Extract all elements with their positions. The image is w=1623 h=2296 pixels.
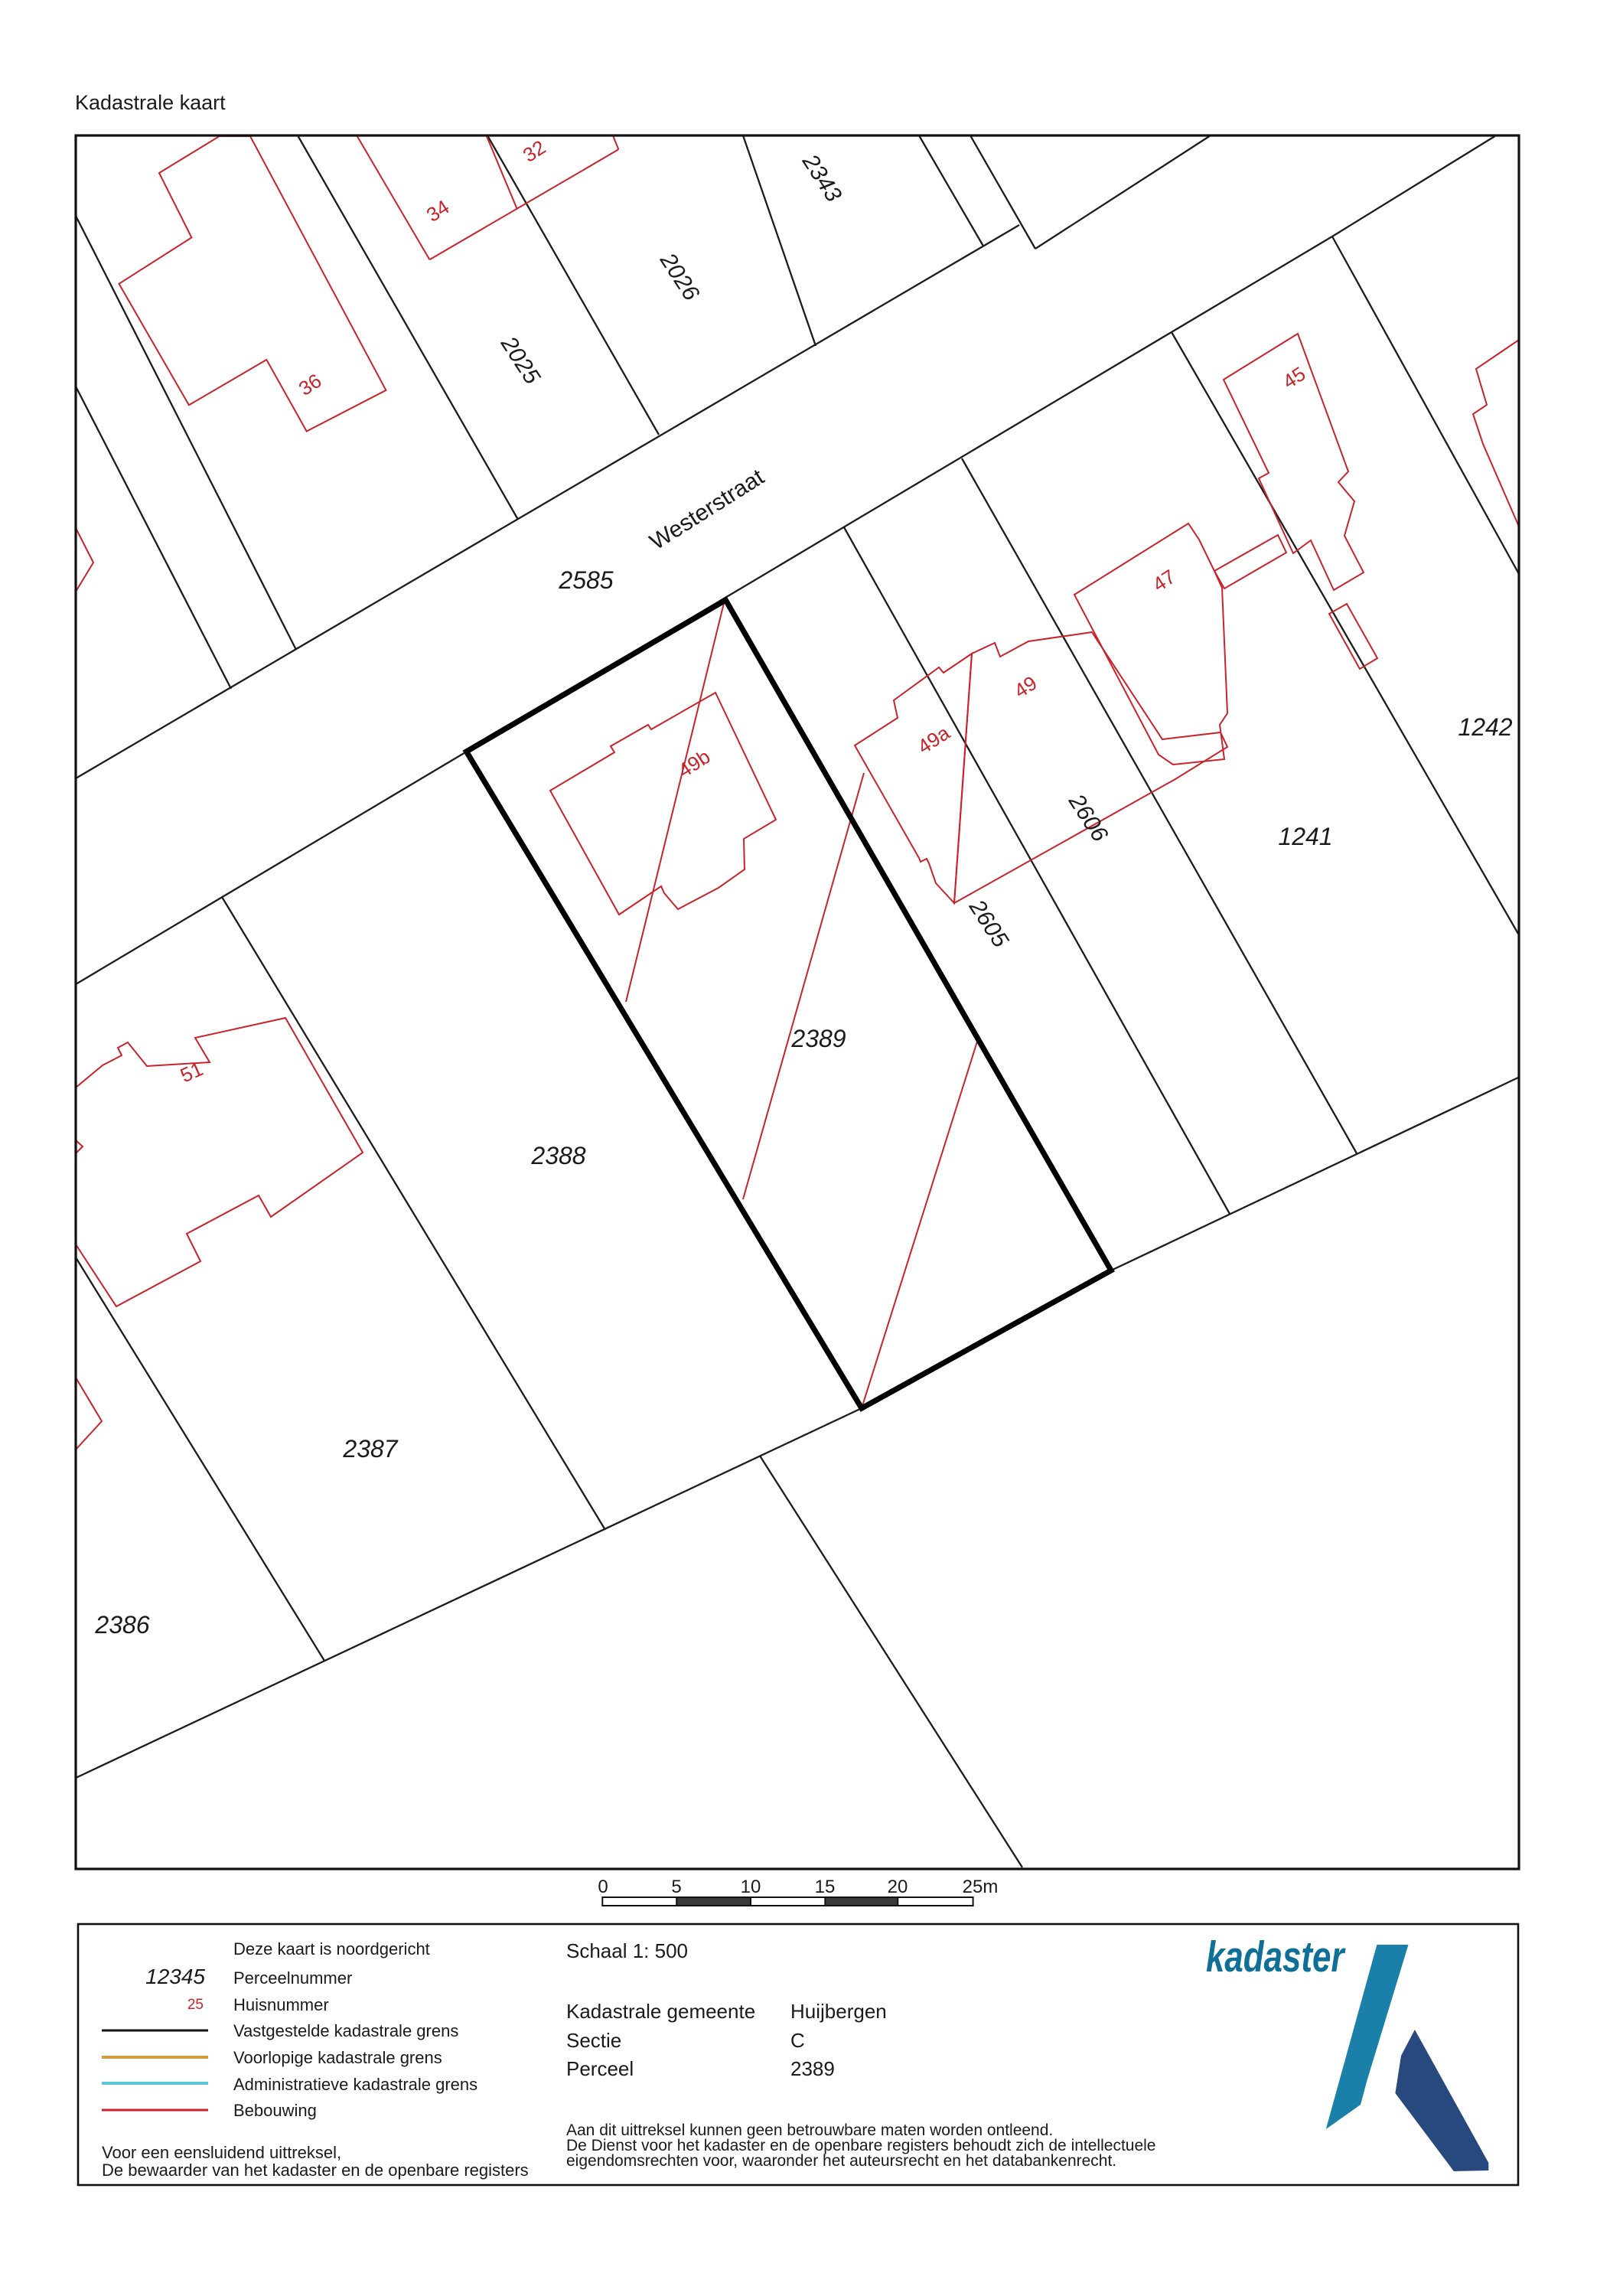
svg-text:15: 15 [815,1877,836,1897]
svg-text:2585: 2585 [558,566,613,594]
svg-text:Deze kaart is noordgericht: Deze kaart is noordgericht [233,1939,430,1958]
svg-text:20: 20 [888,1877,908,1897]
svg-text:kadaster: kadaster [1206,1932,1346,1981]
svg-text:Bebouwing: Bebouwing [233,2101,317,2120]
svg-text:2388: 2388 [530,1142,585,1169]
svg-text:5: 5 [671,1877,681,1897]
svg-text:0: 0 [598,1877,608,1897]
svg-text:Administratieve kadastrale gre: Administratieve kadastrale grens [233,2075,477,2094]
svg-text:De bewaarder van het kadaster: De bewaarder van het kadaster en de open… [102,2161,529,2180]
svg-text:C: C [790,2029,805,2052]
svg-text:1242: 1242 [1458,713,1512,741]
svg-text:12345: 12345 [145,1965,205,1988]
svg-text:Sectie: Sectie [566,2029,621,2052]
svg-text:eigendomsrechten voor, waarond: eigendomsrechten voor, waaronder het aut… [566,2152,1116,2170]
svg-text:2387: 2387 [342,1435,398,1463]
svg-text:Kadastrale kaart: Kadastrale kaart [75,91,226,114]
svg-text:Voor een eensluidend uittrekse: Voor een eensluidend uittreksel, [102,2143,341,2162]
svg-text:Kadastrale gemeente: Kadastrale gemeente [566,2000,755,2023]
svg-text:Huijbergen: Huijbergen [790,2000,887,2023]
svg-text:10: 10 [741,1877,761,1897]
svg-text:Vastgestelde kadastrale grens: Vastgestelde kadastrale grens [233,2021,458,2040]
svg-text:Perceelnummer: Perceelnummer [233,1968,352,1988]
svg-text:25: 25 [187,1997,204,2013]
svg-text:Huisnummer: Huisnummer [233,1995,329,2014]
svg-text:Voorlopige kadastrale grens: Voorlopige kadastrale grens [233,2048,442,2067]
svg-text:2389: 2389 [790,1025,846,1052]
svg-text:2389: 2389 [790,2057,835,2080]
svg-text:1241: 1241 [1278,823,1332,850]
svg-text:Perceel: Perceel [566,2057,634,2080]
svg-text:25m: 25m [963,1877,999,1897]
svg-text:Schaal 1: 500: Schaal 1: 500 [566,1939,688,1962]
svg-text:2386: 2386 [94,1611,149,1639]
